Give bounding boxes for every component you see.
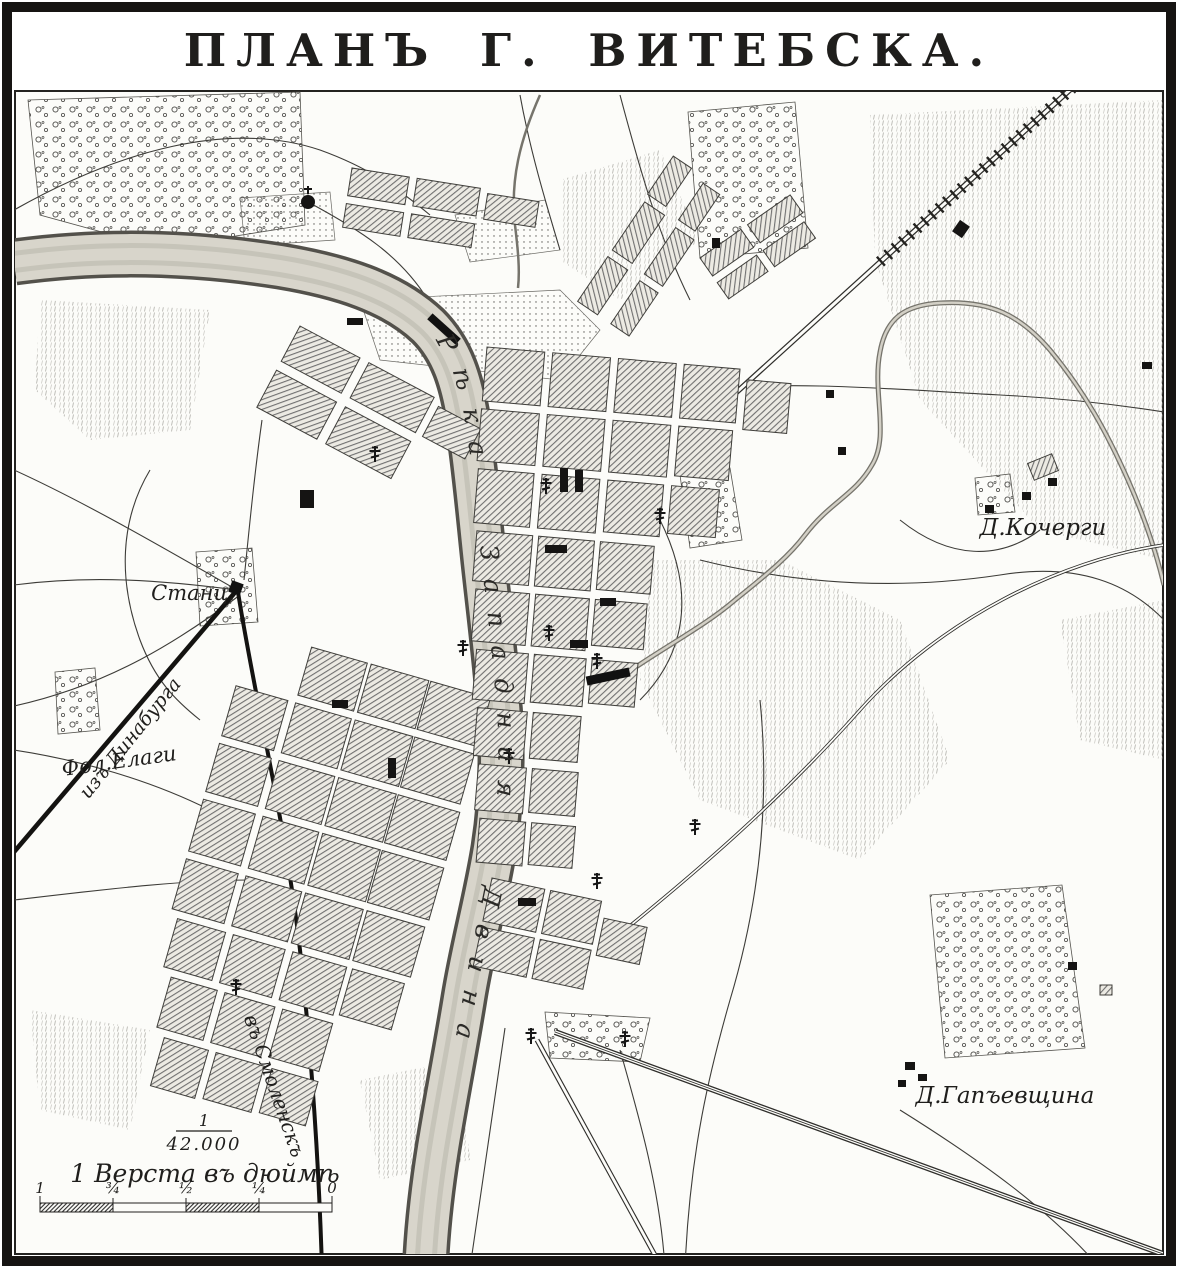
scale-tick-0: 0 bbox=[327, 1179, 337, 1197]
map-title: ПЛАНЪ Г. ВИТЕБСКА. bbox=[184, 24, 994, 77]
map-sheet: ПЛАНЪ Г. ВИТЕБСКА. bbox=[0, 0, 1178, 1268]
scale-tick-34: ¾ bbox=[106, 1179, 121, 1197]
scale-tick-14: ¼ bbox=[252, 1179, 267, 1197]
label-station: Станц. bbox=[151, 581, 235, 605]
svg-text:42.000: 42.000 bbox=[166, 1134, 242, 1155]
scale-tick-12: ½ bbox=[179, 1179, 194, 1197]
scale-tick-1: 1 bbox=[35, 1179, 45, 1197]
svg-text:1: 1 bbox=[199, 1111, 209, 1130]
label-d-kochergi: Д.Кочерги bbox=[979, 515, 1107, 541]
label-d-gapyevshchina: Д.Гапъевщина bbox=[915, 1083, 1095, 1109]
